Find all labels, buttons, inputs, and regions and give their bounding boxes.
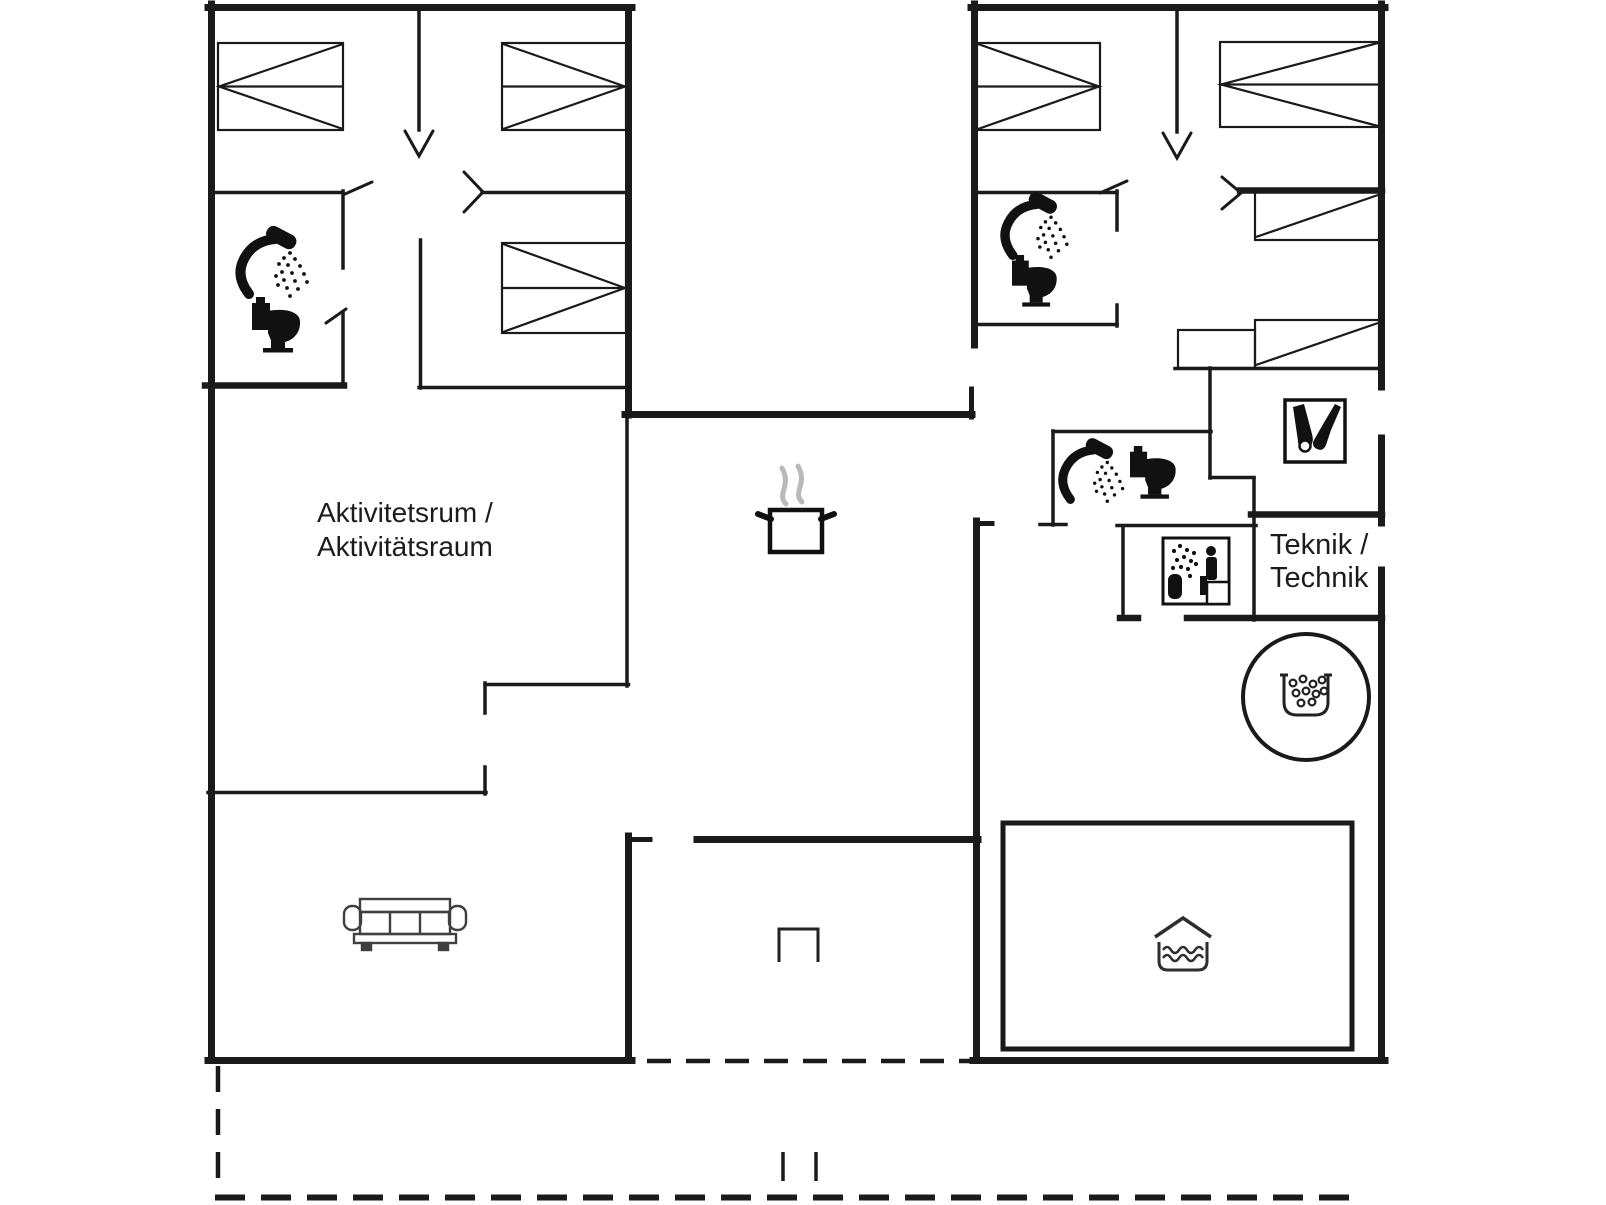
single-bed [1255, 320, 1379, 368]
bunk-bed [1220, 42, 1379, 127]
cleaning-icon [1285, 400, 1345, 462]
shower-icon [1005, 190, 1069, 259]
terrace-dashed-boundary [215, 1061, 1362, 1198]
bunk-bed [218, 43, 343, 130]
toilet-icon [1130, 446, 1176, 499]
activity-room-label-line1: Aktivitetsrum / [317, 496, 493, 530]
sauna-icon [1163, 538, 1229, 604]
whirlpool-icon [1243, 634, 1369, 760]
swimming-pool [1003, 823, 1352, 1049]
tech-room-label-line2: Technik [1270, 562, 1368, 595]
bed-symbols [218, 42, 1379, 368]
tech-room-label: Teknik / Technik [1270, 529, 1368, 595]
toilet-icon [1012, 255, 1057, 307]
tech-room-label-line1: Teknik / [1270, 529, 1368, 562]
indoor-pool-icon [1155, 918, 1211, 970]
grill-icon [779, 929, 818, 962]
toilet-icon [252, 297, 300, 353]
single-bed [1255, 192, 1379, 240]
bunk-bed [502, 43, 626, 130]
shower-icon [240, 223, 308, 297]
floor-plan-drawing [0, 0, 1606, 1205]
bunk-bed [977, 43, 1100, 130]
activity-room-label: Aktivitetsrum / Aktivitätsraum [317, 496, 493, 564]
closet [1178, 330, 1255, 368]
interior-walls [208, 8, 1382, 794]
outer-wall-stubs [629, 389, 993, 840]
activity-room-label-line2: Aktivitätsraum [317, 530, 493, 564]
sofa-icon [344, 899, 466, 950]
cooking-pot-icon [758, 466, 834, 552]
door-swing-marks [326, 131, 1241, 323]
bunk-bed [502, 243, 626, 333]
shower-icon [1063, 436, 1125, 503]
floor-plan: Aktivitetsrum / Aktivitätsraum Teknik / … [0, 0, 1606, 1205]
